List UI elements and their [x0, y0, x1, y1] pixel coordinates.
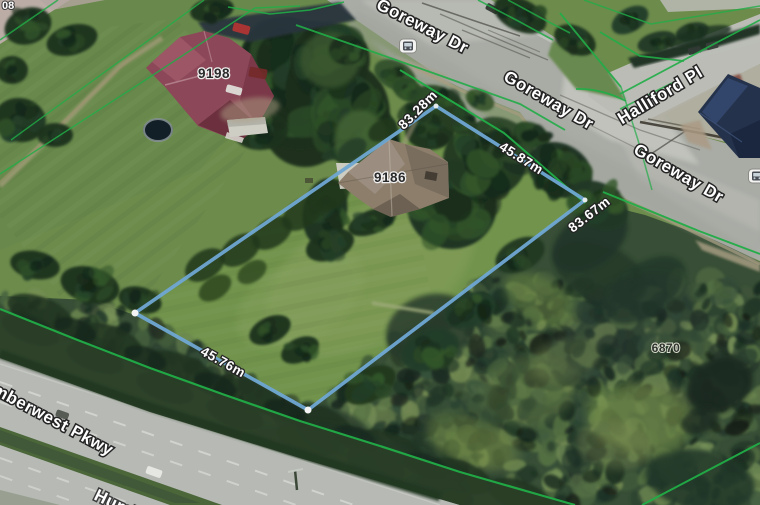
svg-text:6870: 6870	[652, 341, 681, 355]
svg-text:9198: 9198	[198, 66, 230, 81]
svg-text:08: 08	[2, 0, 14, 12]
svg-text:9186: 9186	[374, 170, 406, 185]
